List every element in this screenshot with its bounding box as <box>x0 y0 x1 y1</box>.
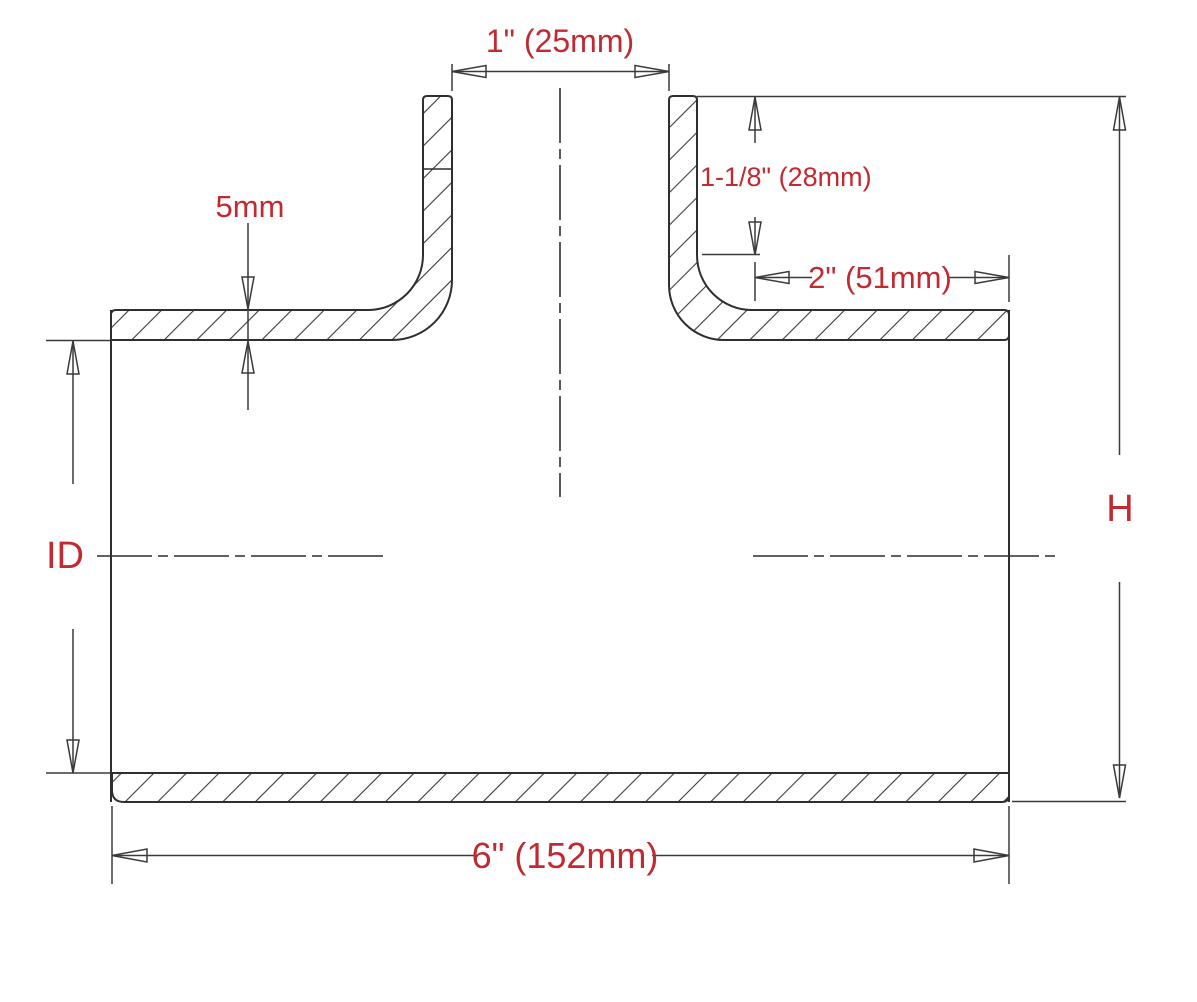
technical-drawing: 1" (25mm) 1-1/8" (28mm) 2" (51mm) 5mm ID… <box>0 0 1197 1002</box>
wall-thickness-label: 5mm <box>216 189 285 224</box>
overall-length-label: 6" (152mm) <box>472 835 659 876</box>
overall-height-label: H <box>1106 488 1133 530</box>
inner-diameter-label: ID <box>46 535 84 577</box>
tee-coupler-drawing: 1" (25mm) 1-1/8" (28mm) 2" (51mm) 5mm ID… <box>0 0 1197 1002</box>
right-leg-label: 2" (51mm) <box>808 260 952 295</box>
dimension-labels: 1" (25mm) 1-1/8" (28mm) 2" (51mm) 5mm ID… <box>46 23 1134 876</box>
branch-id-label: 1" (25mm) <box>486 23 634 59</box>
wall-bottom <box>112 773 1009 802</box>
dimension-overall-height <box>697 97 1126 802</box>
wall-right-and-branch-right <box>669 96 1009 340</box>
dimension-branch-id <box>452 64 669 91</box>
branch-length-label: 1-1/8" (28mm) <box>700 162 872 192</box>
